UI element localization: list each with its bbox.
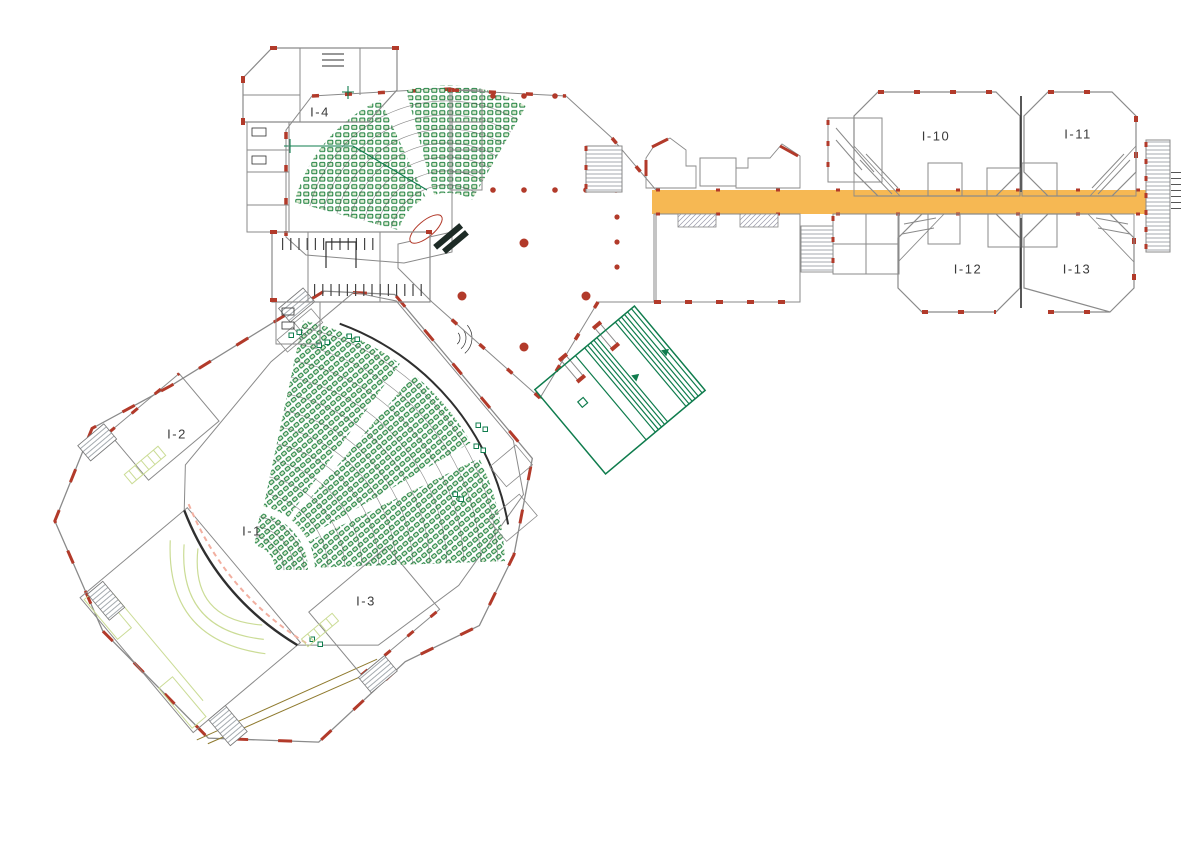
- room-label-i-12: I-12: [954, 262, 982, 277]
- room-label-i-1: I-1: [242, 524, 262, 539]
- room-label-i-13: I-13: [1063, 262, 1091, 277]
- stairwell: [586, 146, 622, 192]
- corridor-floor: [652, 190, 1149, 214]
- elevator-shaft: [678, 214, 716, 227]
- room-label-i-4: I-4: [310, 105, 330, 120]
- floor-plan-svg: [0, 0, 1191, 842]
- room-label-i-10: I-10: [922, 129, 950, 144]
- room-label-i-3: I-3: [356, 594, 376, 609]
- room-label-i-11: I-11: [1064, 127, 1091, 142]
- floor-plan-page: I-1I-2I-3I-4I-10I-11I-12I-13: [0, 0, 1191, 842]
- room-label-i-2: I-2: [167, 427, 187, 442]
- elevator-shaft: [740, 214, 778, 227]
